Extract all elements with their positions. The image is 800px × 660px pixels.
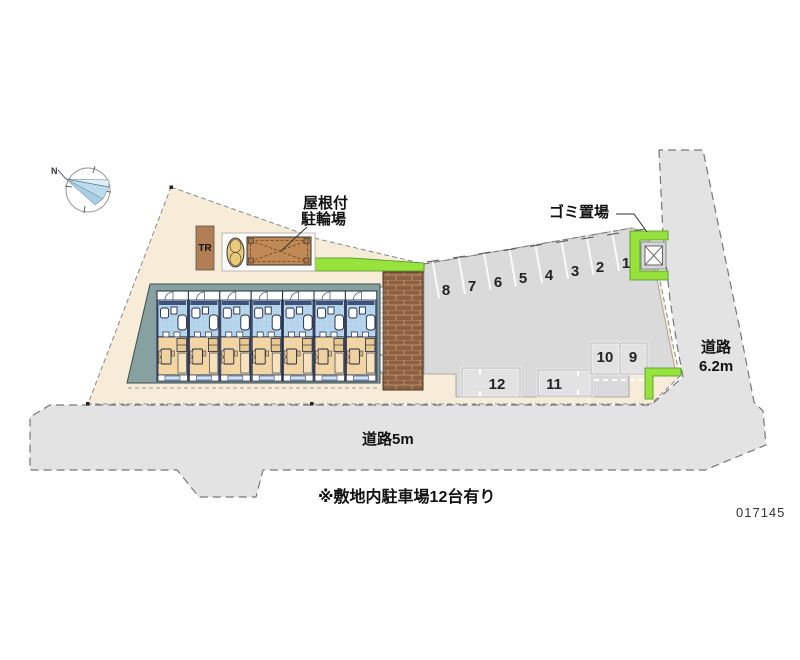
apartment-unit (157, 291, 188, 381)
garbage-enclosure (630, 231, 668, 280)
apartment-unit (220, 291, 251, 381)
bicycle-parking-label: 屋根付 (303, 194, 348, 212)
parking-space-number: 4 (545, 267, 554, 284)
apartment-unit (251, 291, 282, 381)
apartment-building (127, 284, 380, 388)
parking-space-number: 3 (571, 263, 579, 280)
bicycle-parking-label: 駐輪場 (301, 210, 346, 228)
parking-space-number: 6 (494, 274, 502, 291)
apartment-unit (345, 291, 376, 381)
brick-wall (383, 272, 423, 390)
parking-space-number: 1 (622, 255, 630, 272)
road-right-label: 道路 (701, 338, 732, 356)
site-plan: 8 7 6 5 4 3 2 1 12 11 10 9 (0, 0, 800, 660)
plan-number: 017145 (736, 505, 785, 520)
parking-space-number: 2 (596, 259, 604, 276)
road-bottom-label: 道路5m (362, 430, 414, 448)
parking-space-number: 8 (442, 282, 450, 299)
road-right-width-label: 6.2m (699, 358, 733, 375)
apartment-unit (188, 291, 219, 381)
parking-space-number: 12 (489, 376, 506, 393)
parking-space-number: 5 (519, 270, 527, 287)
transformer-label: TR (198, 243, 212, 254)
compass-icon: N (51, 166, 111, 213)
garbage-area-label: ゴミ置場 (549, 203, 609, 221)
parking-note: ※敷地内駐車場12台有り (318, 487, 495, 506)
apartment-unit (314, 291, 345, 381)
parking-space-number: 11 (546, 376, 562, 393)
bicycle-shed (247, 237, 311, 265)
parking-space-number: 7 (468, 278, 476, 295)
compass-north-label: N (51, 166, 58, 176)
parking-space-number: 9 (629, 349, 637, 366)
motorbike-shape (227, 238, 244, 267)
parking-space-number: 10 (597, 349, 614, 366)
apartment-unit (283, 291, 314, 381)
transformer-box: TR (196, 226, 214, 270)
